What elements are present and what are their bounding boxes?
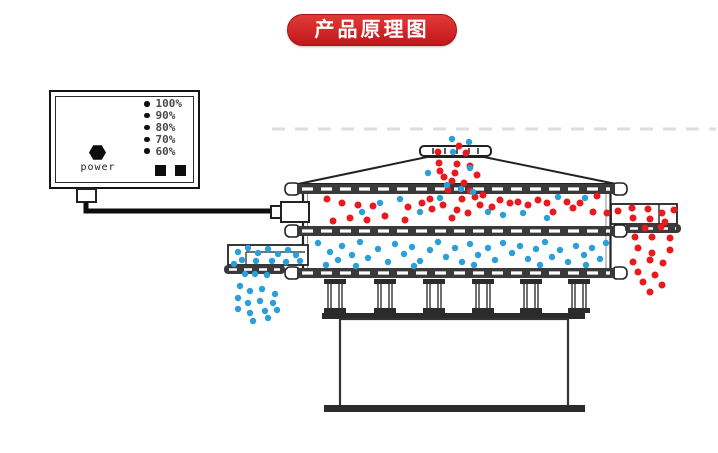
- lower-deck-blue-dot: [565, 259, 571, 265]
- right-discharge-red-dot: [652, 272, 659, 279]
- lower-deck-blue-dot: [452, 245, 458, 251]
- inlet-stream-red-dot: [461, 180, 468, 187]
- left-outlet-blue-dot: [253, 258, 259, 264]
- ultrasonic-transducer: [281, 202, 309, 222]
- right-discharge-red-dot: [640, 279, 647, 286]
- lower-deck-blue-dot: [375, 246, 381, 252]
- upper-deck-red-dot: [405, 204, 412, 211]
- upper-deck-red-dot: [564, 199, 571, 206]
- lower-deck-blue-dot: [603, 240, 609, 246]
- spring: [374, 279, 396, 313]
- upper-deck-blue-dot: [500, 212, 506, 218]
- left-discharge-blue-dot: [252, 271, 258, 277]
- upper-deck-blue-dot: [544, 215, 550, 221]
- lower-deck-blue-dot: [357, 239, 363, 245]
- lower-deck-blue-dot: [573, 243, 579, 249]
- inlet-stream-blue-dot: [466, 139, 472, 145]
- inlet-stream-red-dot: [456, 143, 463, 150]
- spring: [568, 279, 590, 313]
- left-outlet-blue-dot: [297, 258, 303, 264]
- power-cable: [86, 202, 272, 211]
- lower-deck-blue-dot: [365, 255, 371, 261]
- right-discharge-red-dot: [649, 234, 656, 241]
- middle-clamp-band: [285, 225, 627, 237]
- lower-deck-blue-dot: [335, 257, 341, 263]
- bottom-clamp-band: [285, 267, 627, 279]
- upper-deck-blue-dot: [582, 195, 588, 201]
- upper-deck-blue-dot: [417, 209, 423, 215]
- right-chute-red-dot: [658, 224, 665, 231]
- left-outlet-blue-dot: [239, 257, 245, 263]
- lower-deck-blue-dot: [411, 263, 417, 269]
- lower-deck-blue-dot: [485, 245, 491, 251]
- left-discharge-blue-dot: [242, 271, 248, 277]
- upper-deck-red-dot: [604, 210, 611, 217]
- left-discharge-blue-dot: [265, 315, 271, 321]
- right-chute-red-dot: [615, 208, 622, 215]
- inlet-stream-red-dot: [452, 170, 459, 177]
- upper-deck-red-dot: [480, 192, 487, 199]
- inlet-stream-blue-dot: [449, 136, 455, 142]
- lower-deck-blue-dot: [435, 239, 441, 245]
- left-outlet-blue-dot: [275, 251, 281, 257]
- inlet-stream-blue-dot: [425, 170, 431, 176]
- upper-deck-red-dot: [324, 196, 331, 203]
- inlet-stream-blue-dot: [467, 165, 473, 171]
- inlet-stream-red-dot: [441, 174, 448, 181]
- left-outlet-blue-dot: [265, 246, 271, 252]
- left-outlet-blue-dot: [293, 252, 299, 258]
- inlet-stream-red-dot: [436, 160, 443, 167]
- lower-deck-blue-dot: [581, 252, 587, 258]
- left-discharge-blue-dot: [235, 295, 241, 301]
- lower-deck-blue-dot: [323, 262, 329, 268]
- right-discharge-red-dot: [635, 269, 642, 276]
- inlet-stream-red-dot: [437, 168, 444, 175]
- left-discharge-blue-dot: [262, 308, 268, 314]
- spring: [324, 279, 346, 313]
- right-chute-red-dot: [629, 205, 636, 212]
- left-discharge-blue-dot: [237, 283, 243, 289]
- lower-deck-blue-dot: [392, 241, 398, 247]
- right-discharge-red-dot: [660, 260, 667, 267]
- lower-deck-blue-dot: [517, 243, 523, 249]
- lower-deck-blue-dot: [417, 258, 423, 264]
- left-discharge-blue-dot: [245, 300, 251, 306]
- lower-deck-blue-dot: [467, 241, 473, 247]
- right-discharge-red-dot: [647, 289, 654, 296]
- support-springs: [324, 279, 590, 313]
- right-discharge-red-dot: [667, 247, 674, 254]
- lower-deck-blue-dot: [589, 245, 595, 251]
- right-discharge-red-dot: [667, 235, 674, 242]
- left-outlet-blue-dot: [283, 259, 289, 265]
- upper-deck-red-dot: [497, 197, 504, 204]
- upper-deck-blue-dot: [377, 200, 383, 206]
- lower-deck-blue-dot: [542, 239, 548, 245]
- spring: [472, 279, 494, 313]
- spring: [423, 279, 445, 313]
- left-discharge-blue-dot: [257, 298, 263, 304]
- upper-deck-red-dot: [382, 213, 389, 220]
- left-discharge-blue-dot: [247, 310, 253, 316]
- lower-deck-blue-dot: [509, 250, 515, 256]
- upper-deck-red-dot: [330, 218, 337, 225]
- upper-deck-red-dot: [544, 200, 551, 207]
- inlet-stream-blue-dot: [450, 149, 456, 155]
- right-chute-red-dot: [642, 225, 649, 232]
- inlet-stream-red-dot: [454, 161, 461, 168]
- upper-deck-blue-dot: [520, 210, 526, 216]
- upper-deck-red-dot: [465, 210, 472, 217]
- cable-gland: [77, 189, 96, 202]
- base-plate: [324, 405, 585, 412]
- lower-deck-blue-dot: [327, 249, 333, 255]
- left-discharge-blue-dot: [272, 291, 278, 297]
- upper-deck-red-dot: [419, 200, 426, 207]
- lower-deck-blue-dot: [471, 262, 477, 268]
- upper-deck-red-dot: [477, 202, 484, 209]
- right-discharge-red-dot: [647, 257, 654, 264]
- upper-deck-red-dot: [550, 209, 557, 216]
- upper-deck-blue-dot: [397, 196, 403, 202]
- upper-deck-red-dot: [355, 202, 362, 209]
- inlet-stream-red-dot: [474, 172, 481, 179]
- upper-deck-blue-dot: [359, 209, 365, 215]
- lower-deck-blue-dot: [549, 254, 555, 260]
- lower-deck-blue-dot: [339, 243, 345, 249]
- upper-deck-red-dot: [339, 200, 346, 207]
- lower-deck-blue-dot: [409, 244, 415, 250]
- left-outlet-blue-dot: [285, 247, 291, 253]
- upper-deck-red-dot: [535, 197, 542, 204]
- right-discharge-red-dot: [635, 245, 642, 252]
- lower-deck-blue-dot: [597, 256, 603, 262]
- inlet-stream-blue-dot: [444, 182, 450, 188]
- upper-deck-red-dot: [449, 215, 456, 222]
- right-chute-red-dot: [645, 206, 652, 213]
- lower-deck-blue-dot: [537, 262, 543, 268]
- upper-deck-blue-dot: [485, 209, 491, 215]
- upper-deck-red-dot: [590, 209, 597, 216]
- right-chute-red-dot: [647, 216, 654, 223]
- upper-deck-red-dot: [570, 205, 577, 212]
- lower-deck-blue-dot: [533, 246, 539, 252]
- right-discharge-red-dot: [632, 234, 639, 241]
- left-discharge-blue-dot: [235, 306, 241, 312]
- right-discharge-red-dot: [630, 259, 637, 266]
- upper-deck-red-dot: [429, 206, 436, 213]
- upper-deck-red-dot: [427, 196, 434, 203]
- right-chute-red-dot: [630, 215, 637, 222]
- spring: [520, 279, 542, 313]
- left-discharge-blue-dot: [250, 318, 256, 324]
- lower-deck-blue-dot: [315, 240, 321, 246]
- inlet-stream-red-dot: [463, 150, 470, 157]
- lower-deck-blue-dot: [353, 263, 359, 269]
- lower-deck-blue-dot: [583, 262, 589, 268]
- left-discharge-blue-dot: [247, 288, 253, 294]
- upper-deck-red-dot: [364, 217, 371, 224]
- lower-deck-blue-dot: [500, 240, 506, 246]
- upper-deck-red-dot: [525, 202, 532, 209]
- right-discharge-red-dot: [659, 282, 666, 289]
- upper-deck-red-dot: [577, 200, 584, 207]
- lower-deck-blue-dot: [349, 252, 355, 258]
- upper-deck-red-dot: [347, 215, 354, 222]
- left-discharge-blue-dot: [270, 300, 276, 306]
- upper-deck-blue-dot: [555, 194, 561, 200]
- left-outlet-blue-dot: [255, 250, 261, 256]
- upper-deck-red-dot: [440, 202, 447, 209]
- lower-deck-blue-dot: [401, 251, 407, 257]
- base-housing: [340, 319, 568, 407]
- left-discharge-blue-dot: [274, 307, 280, 313]
- upper-deck-red-dot: [515, 199, 522, 206]
- lower-deck-blue-dot: [557, 247, 563, 253]
- lower-deck-blue-dot: [459, 259, 465, 265]
- lower-deck-blue-dot: [525, 256, 531, 262]
- upper-deck-blue-dot: [437, 195, 443, 201]
- left-outlet-blue-dot: [231, 261, 237, 267]
- upper-deck-red-dot: [454, 207, 461, 214]
- lower-deck-blue-dot: [443, 254, 449, 260]
- inlet-stream-red-dot: [435, 149, 442, 156]
- upper-deck-red-dot: [594, 193, 601, 200]
- lower-deck-blue-dot: [475, 252, 481, 258]
- left-outlet-blue-dot: [245, 245, 251, 251]
- top-clamp-band: [285, 183, 627, 195]
- upper-deck-red-dot: [459, 196, 466, 203]
- right-chute-red-dot: [671, 207, 678, 214]
- inlet-stream-blue-dot: [458, 186, 464, 192]
- left-discharge-blue-dot: [259, 286, 265, 292]
- sieve-machine-diagram: [0, 0, 718, 453]
- left-outlet-blue-dot: [269, 258, 275, 264]
- right-chute-red-dot: [659, 210, 666, 217]
- left-outlet-blue-dot: [235, 249, 241, 255]
- page: 产品原理图 power 100% 90% 80% 70%: [0, 0, 718, 453]
- lower-deck-blue-dot: [427, 247, 433, 253]
- left-discharge-blue-dot: [264, 272, 270, 278]
- upper-deck-red-dot: [507, 200, 514, 207]
- upper-deck-red-dot: [370, 203, 377, 210]
- lower-deck-blue-dot: [385, 259, 391, 265]
- upper-deck-blue-dot: [470, 189, 476, 195]
- lower-deck-blue-dot: [492, 257, 498, 263]
- upper-deck-red-dot: [402, 217, 409, 224]
- right-discharge-red-dot: [649, 250, 656, 257]
